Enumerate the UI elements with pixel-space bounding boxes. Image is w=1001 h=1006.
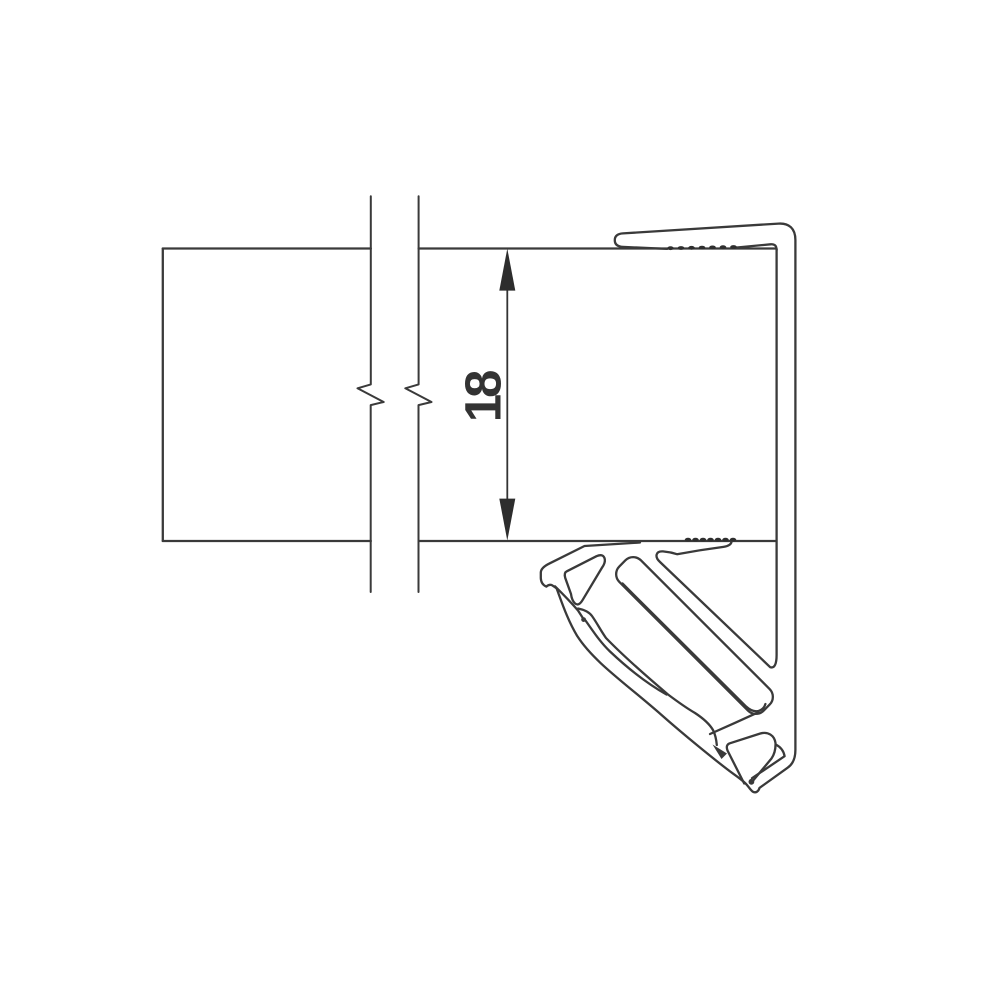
svg-text:18: 18 xyxy=(455,371,512,422)
